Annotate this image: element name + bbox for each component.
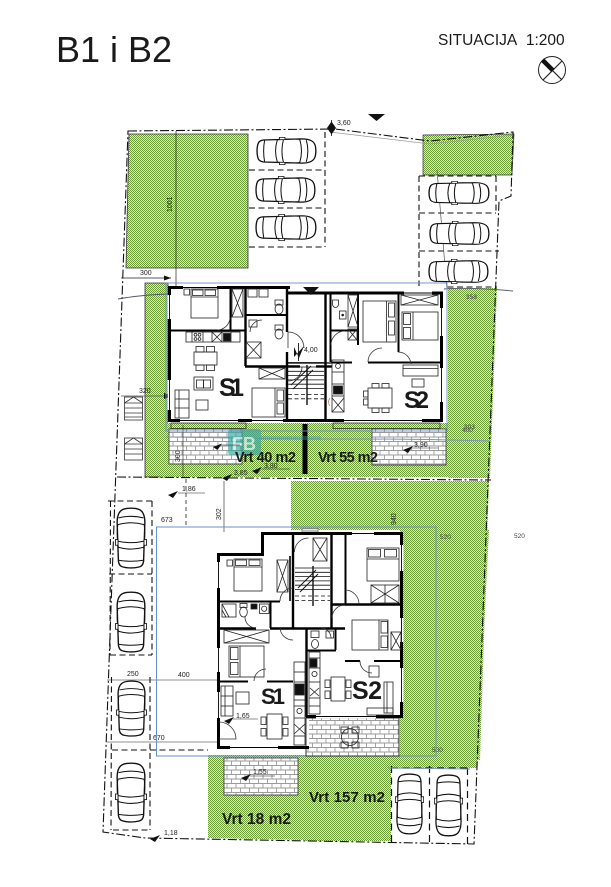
- svg-text:3,60: 3,60: [337, 120, 351, 127]
- svg-text:B1 i B2: B1 i B2: [56, 29, 172, 70]
- svg-text:940: 940: [391, 513, 398, 525]
- svg-text:S1: S1: [219, 374, 244, 402]
- svg-text:1,55: 1,55: [253, 769, 267, 776]
- svg-text:Vrt 18 m2: Vrt 18 m2: [222, 811, 291, 828]
- svg-text:250: 250: [127, 671, 139, 678]
- svg-text:4,00: 4,00: [304, 347, 318, 354]
- svg-text:320: 320: [139, 388, 151, 395]
- svg-text:SITUACIJA 1:200: SITUACIJA 1:200: [438, 32, 565, 49]
- svg-text:302: 302: [216, 508, 223, 520]
- svg-text:520: 520: [514, 533, 525, 540]
- svg-text:673: 673: [161, 517, 173, 524]
- svg-text:3,85: 3,85: [234, 470, 248, 477]
- svg-text:520: 520: [440, 534, 451, 541]
- svg-text:Vrt 157 m2: Vrt 157 m2: [309, 789, 385, 806]
- svg-text:358: 358: [466, 294, 477, 301]
- svg-text:S2: S2: [352, 677, 382, 705]
- svg-text:1,18: 1,18: [164, 830, 178, 837]
- svg-text:Vrt 55 m2: Vrt 55 m2: [318, 450, 378, 466]
- svg-text:300: 300: [175, 450, 182, 462]
- svg-text:400: 400: [462, 427, 473, 434]
- svg-text:500: 500: [432, 747, 443, 754]
- svg-text:300: 300: [140, 270, 152, 277]
- svg-text:1,86: 1,86: [182, 486, 196, 493]
- svg-text:S2: S2: [404, 387, 429, 414]
- svg-text:400: 400: [178, 672, 190, 679]
- svg-text:S1: S1: [261, 684, 285, 709]
- svg-text:1001: 1001: [167, 196, 174, 212]
- svg-text:670: 670: [153, 735, 165, 742]
